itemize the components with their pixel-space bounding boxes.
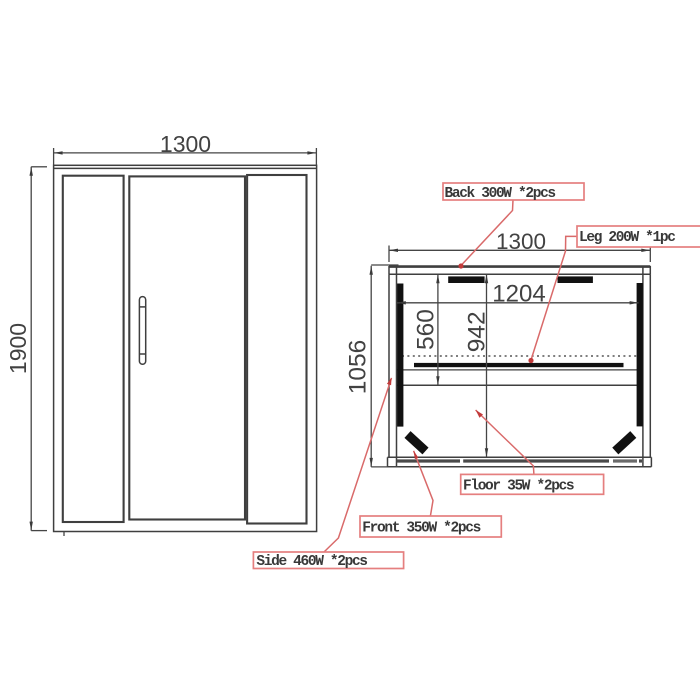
svg-text:Front 350W *2pcs: Front 350W *2pcs <box>362 521 480 537</box>
svg-text:1204: 1204 <box>492 280 545 307</box>
svg-text:1300: 1300 <box>496 229 546 254</box>
svg-text:1900: 1900 <box>5 323 31 374</box>
svg-text:Floor 35W *2pcs: Floor 35W *2pcs <box>463 479 574 495</box>
svg-text:Leg 200W *1pc: Leg 200W *1pc <box>579 230 675 246</box>
svg-text:942: 942 <box>464 311 491 352</box>
svg-text:560: 560 <box>413 309 440 350</box>
svg-text:1056: 1056 <box>345 340 372 395</box>
svg-text:Side 460W *2pcs: Side 460W *2pcs <box>256 554 367 570</box>
svg-text:Back 300W *2pcs: Back 300W *2pcs <box>445 186 556 202</box>
svg-text:1300: 1300 <box>160 131 211 157</box>
